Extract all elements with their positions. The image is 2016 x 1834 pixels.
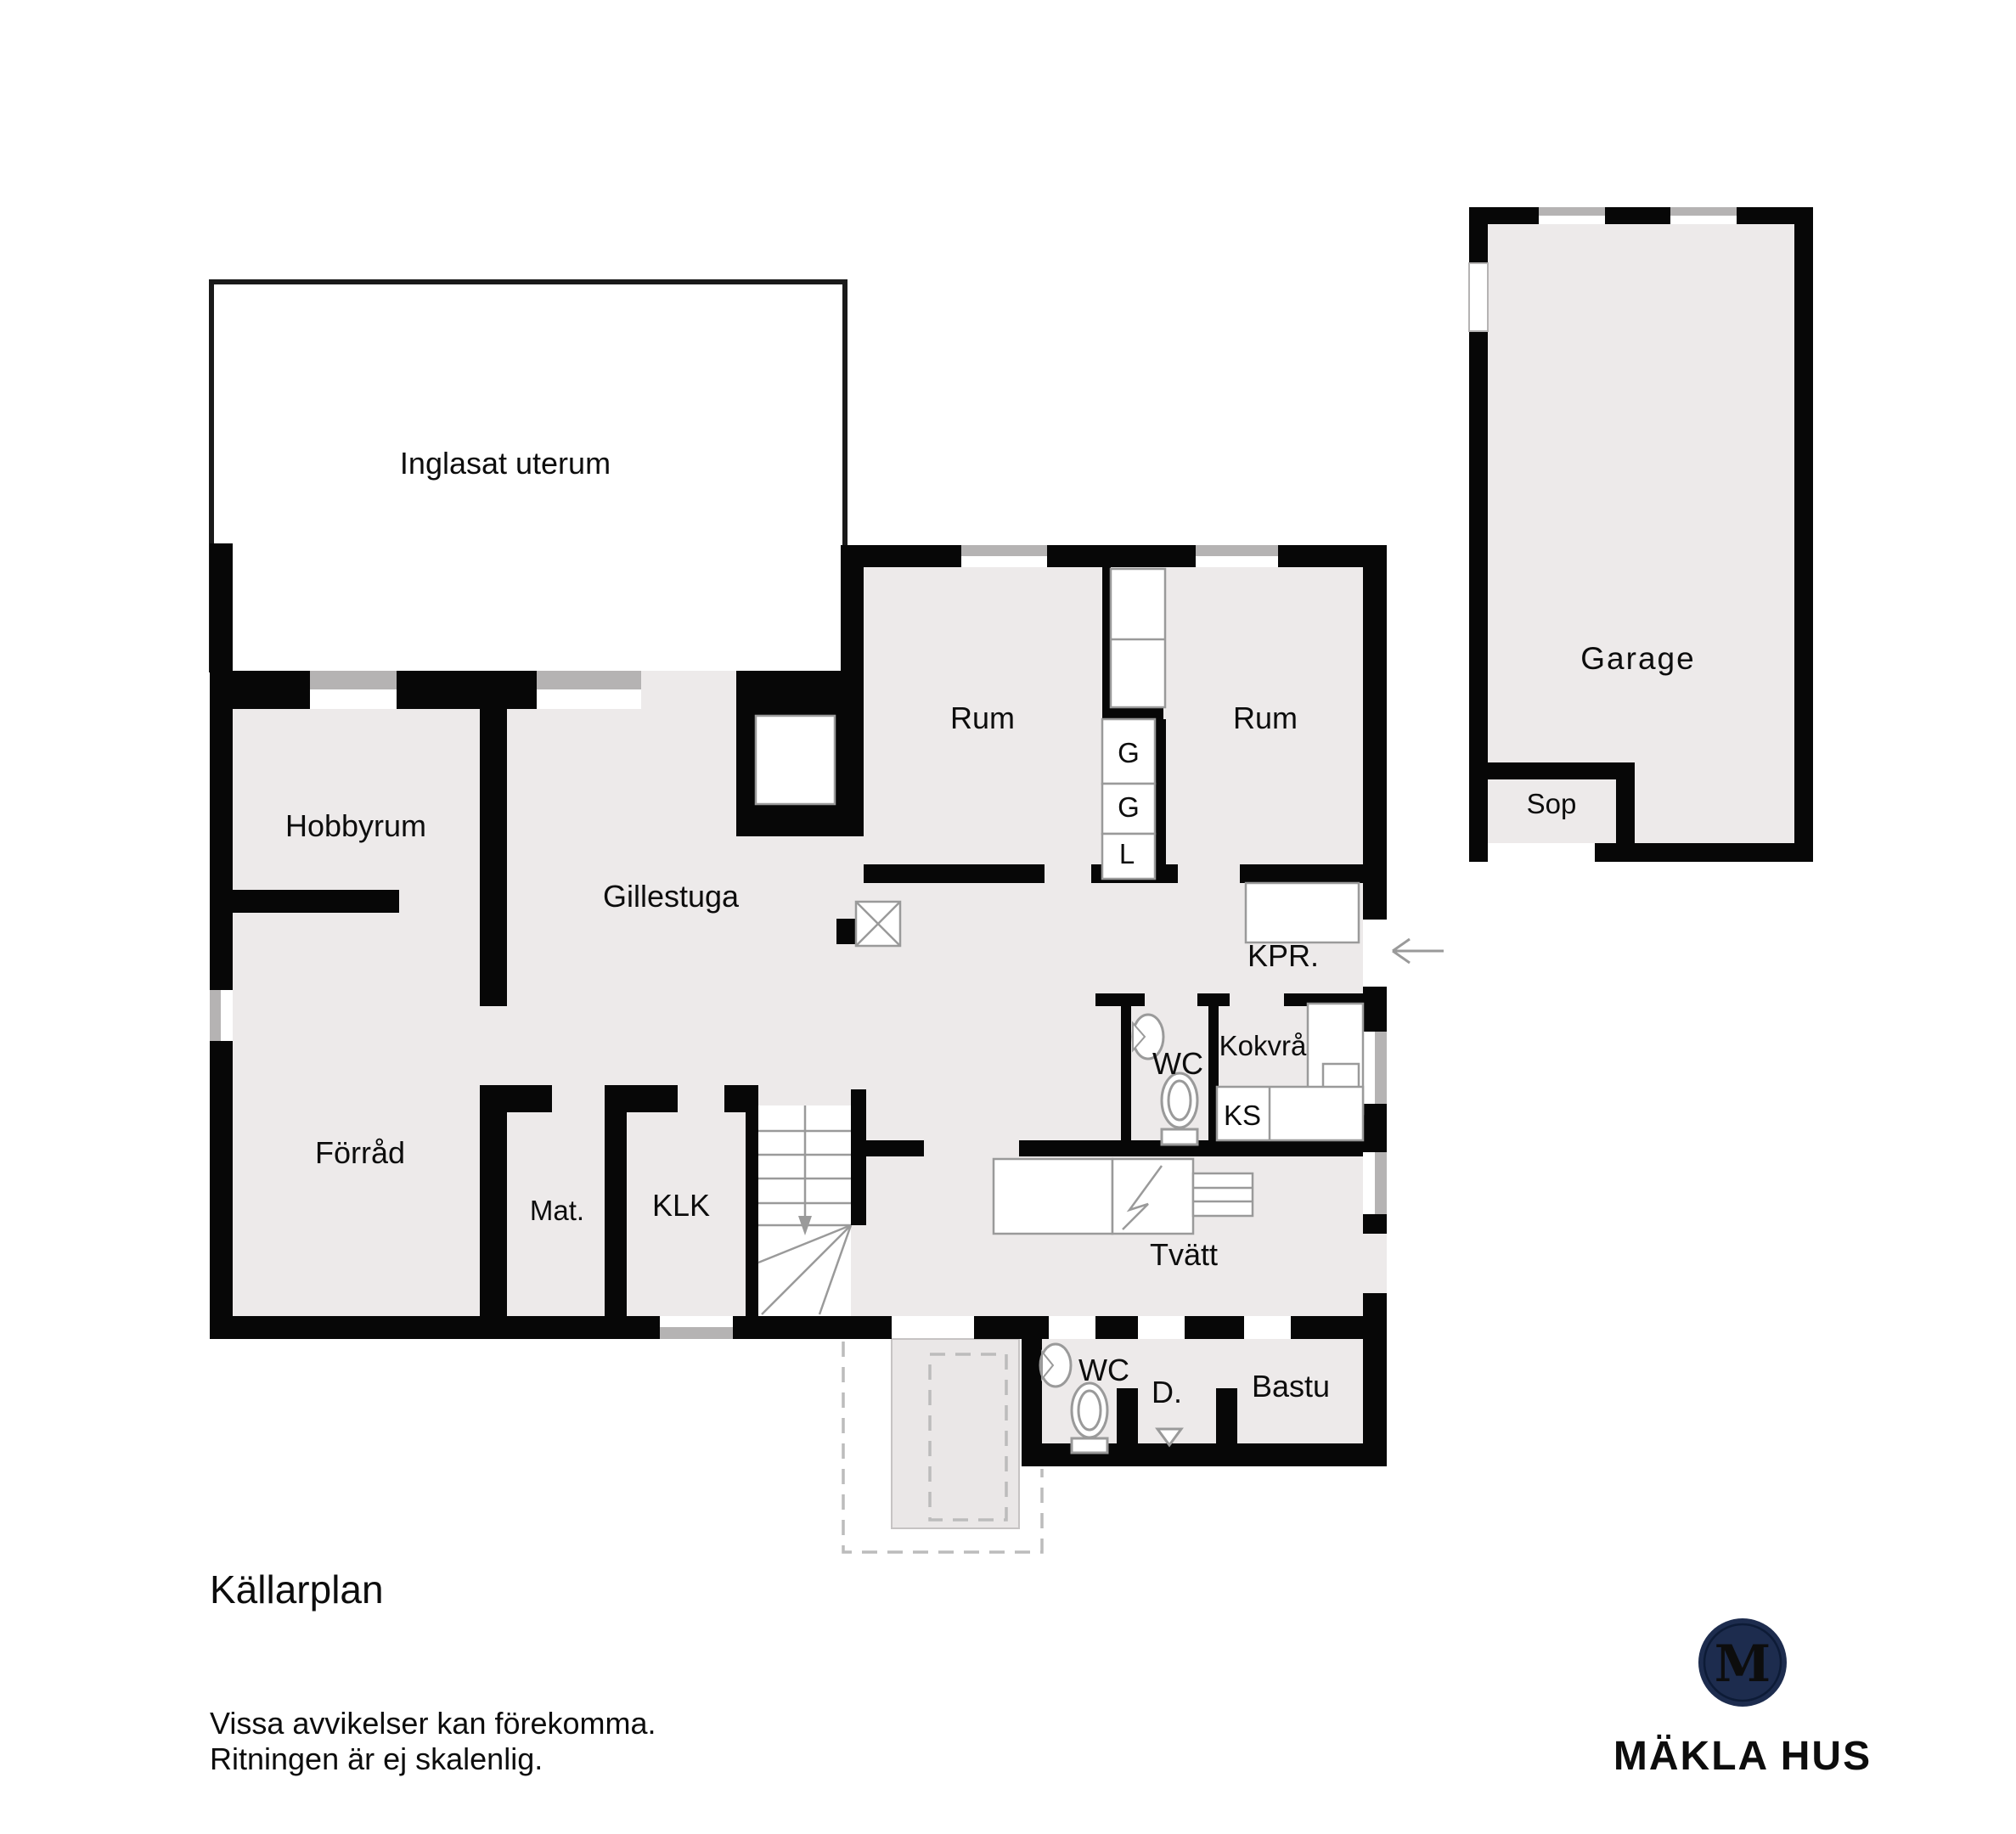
room-label-ks: KS [1224, 1100, 1261, 1131]
wall-segment [1363, 1214, 1387, 1234]
stair-niche [756, 716, 835, 804]
wall-segment [1291, 1316, 1387, 1339]
wall-segment [1185, 1316, 1244, 1339]
window-icon [1196, 545, 1278, 556]
wall-segment [605, 1104, 627, 1316]
toilet-bowl [1168, 1081, 1191, 1120]
closet-label-g2: G [1118, 791, 1140, 823]
wall-segment [1240, 864, 1387, 883]
room-label-rum-right: Rum [1233, 700, 1298, 735]
room-label-forrad: Förråd [315, 1135, 405, 1170]
washing-machine-icon [1112, 1159, 1193, 1234]
wall-segment [210, 543, 233, 672]
wall-segment [210, 709, 233, 990]
laundry-bench [994, 1159, 1112, 1234]
window-pane [310, 689, 397, 709]
room-label-dusch: D. [1152, 1375, 1182, 1409]
garage-side-opening [1469, 263, 1488, 331]
room-label-uterum: Inglasat uterum [400, 446, 611, 481]
window-pane [1670, 216, 1737, 224]
wall-segment [1155, 719, 1166, 866]
window-pane [1196, 556, 1278, 567]
window-icon [210, 990, 221, 1041]
window-pane [1363, 1032, 1375, 1104]
wall-segment [866, 1140, 924, 1156]
wall-segment [851, 1089, 866, 1225]
wall-segment [1605, 207, 1670, 224]
floor-garage [1488, 222, 1794, 843]
wall-segment [1363, 545, 1387, 920]
toilet-bowl [1078, 1391, 1101, 1430]
wall-segment [1363, 1104, 1387, 1152]
window-icon [961, 545, 1047, 556]
window-icon [1670, 207, 1737, 216]
room-label-hobbyrum: Hobbyrum [285, 808, 426, 843]
window-pane [660, 1316, 733, 1327]
wall-segment [210, 1041, 233, 1339]
wall-segment [1363, 987, 1387, 1032]
wall-segment [1047, 545, 1196, 567]
wall-segment [864, 864, 1045, 883]
wall-segment [210, 1316, 660, 1339]
wall-segment [746, 1104, 758, 1316]
wall-segment [397, 671, 537, 709]
window-icon [660, 1327, 733, 1339]
wall-segment [1095, 1316, 1138, 1339]
wall-segment [210, 671, 310, 709]
disclaimer-line1: Vissa avvikelser kan förekomma. [210, 1706, 656, 1741]
wall-segment [1469, 331, 1488, 862]
room-label-wc-upper: WC [1152, 1046, 1203, 1081]
window-icon [1539, 207, 1605, 216]
window-pane [537, 689, 641, 709]
logo-brand-text: MÄKLA HUS [1613, 1734, 1872, 1779]
kpr-shelf [1246, 883, 1359, 942]
entry-arrow-icon [1393, 939, 1444, 963]
room-label-kokvra: Kokvrå [1219, 1030, 1307, 1061]
wall-segment [507, 1085, 552, 1112]
wall-segment [1469, 207, 1488, 263]
wall-segment [1121, 1006, 1131, 1142]
floorplan-drawing: Inglasat uterum Hobbyrum Gillestuga Rum … [0, 0, 2016, 1834]
room-label-tvatt: Tvätt [1150, 1237, 1218, 1272]
footer: Källarplan Vissa avvikelser kan förekomm… [210, 1567, 656, 1776]
wall-segment [842, 545, 961, 567]
room-label-bastu: Bastu [1252, 1369, 1330, 1404]
room-label-mat: Mat. [530, 1195, 584, 1226]
logo-monogram: M [1715, 1634, 1771, 1694]
wall-segment [1102, 567, 1111, 715]
floorplan-page: Inglasat uterum Hobbyrum Gillestuga Rum … [0, 0, 2016, 1834]
wall-segment [1794, 207, 1813, 862]
toilet-tank [1162, 1129, 1197, 1145]
wall-segment [1488, 762, 1635, 779]
wall-segment [1102, 707, 1163, 719]
room-label-wc-lower: WC [1078, 1353, 1129, 1387]
window-icon [537, 671, 641, 689]
room-label-garage: Garage [1580, 641, 1695, 676]
window-icon [310, 671, 397, 689]
closet-upper [1111, 569, 1165, 707]
window-icon [1375, 1032, 1387, 1104]
wall-segment [480, 1085, 507, 1316]
wall-segment [836, 919, 856, 944]
room-label-gillestuga: Gillestuga [603, 879, 740, 914]
room-label-rum-left: Rum [950, 700, 1015, 735]
wall-segment [1616, 762, 1635, 862]
floor-door-gap-uterum [641, 671, 736, 709]
window-pane [1539, 216, 1605, 224]
window-icon [1375, 1152, 1387, 1214]
window-pane [221, 990, 233, 1041]
room-label-sop: Sop [1527, 788, 1577, 819]
room-label-klk: KLK [652, 1188, 710, 1223]
closet-label-l: L [1119, 838, 1135, 869]
wall-segment [480, 709, 507, 1006]
wall-segment [605, 1085, 678, 1112]
floor-right-wall-opening [1363, 1234, 1387, 1293]
floor-title: Källarplan [210, 1567, 384, 1612]
wall-segment [1095, 993, 1145, 1006]
wall-segment [233, 890, 399, 913]
floor-exterior-stair-tongue [892, 1339, 1019, 1528]
room-label-kpr: KPR. [1247, 938, 1319, 973]
window-pane [1363, 1152, 1375, 1214]
closet-label-g1: G [1118, 737, 1140, 768]
wall-segment [974, 1316, 1049, 1339]
wall-segment [1197, 993, 1230, 1006]
brand-logo: M MÄKLA HUS [1613, 1618, 1872, 1779]
laundry-drawers [1193, 1173, 1253, 1216]
disclaimer-line2: Ritningen är ej skalenlig. [210, 1741, 543, 1776]
wall-segment [1363, 1339, 1387, 1466]
toilet-tank [1072, 1438, 1107, 1453]
wall-segment [733, 1316, 892, 1339]
window-pane [961, 556, 1047, 567]
wall-segment [1469, 843, 1488, 862]
